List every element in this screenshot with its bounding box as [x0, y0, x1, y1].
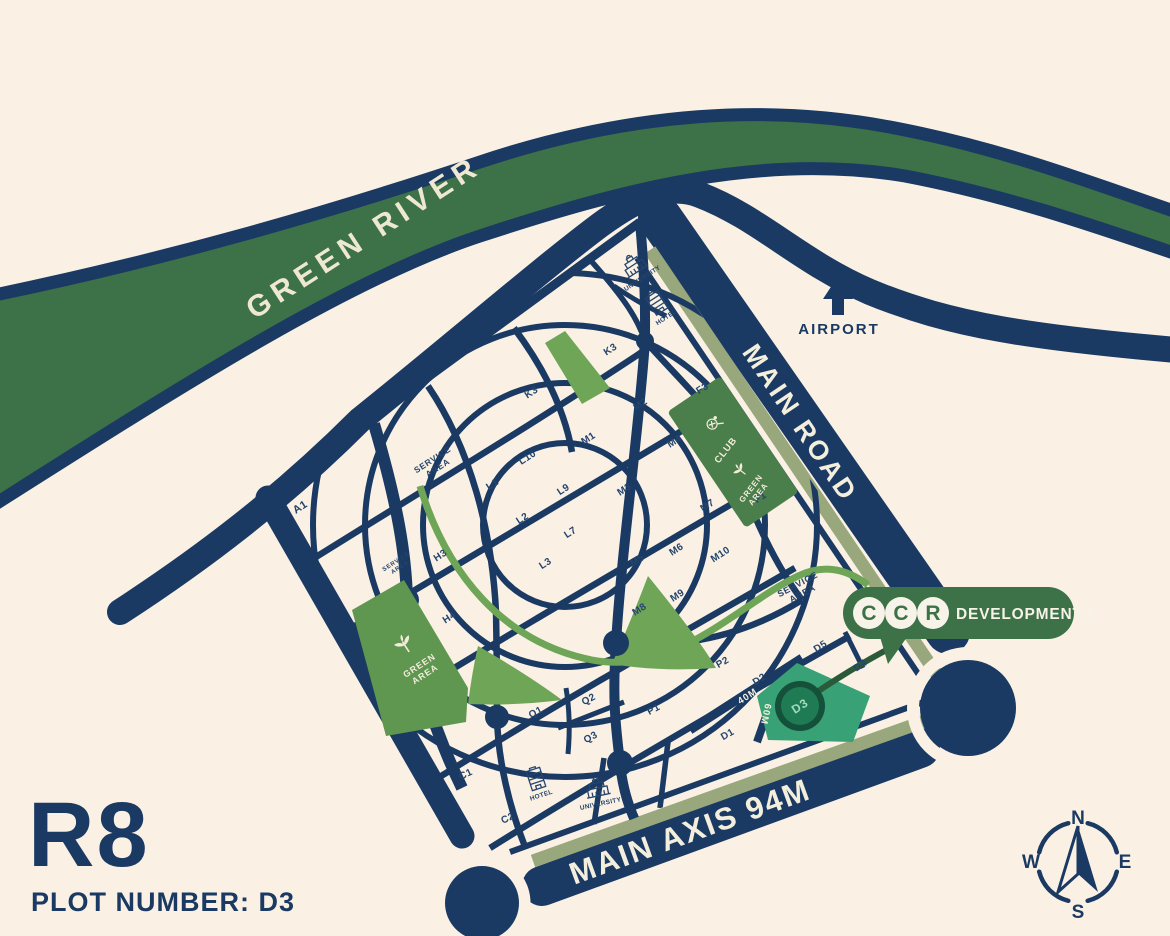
masterplan-svg: GREEN RIVER [0, 0, 1170, 936]
masterplan-canvas: GREEN RIVER [0, 0, 1170, 936]
plot-number-line: PLOT NUMBER: D3 [31, 887, 295, 917]
logo-letter-2: C [893, 602, 908, 625]
compass-west: W [1022, 852, 1040, 873]
roundabout-east [920, 660, 1016, 756]
airport-label: AIRPORT [798, 321, 880, 338]
compass-north: N [1071, 808, 1085, 829]
zone-code: R8 [28, 784, 150, 886]
logo-name: DEVELOPMENTS [956, 606, 1094, 623]
logo-letter-3: R [925, 602, 940, 625]
compass-south: S [1072, 902, 1085, 923]
logo-letter-1: C [861, 602, 876, 625]
compass-east: E [1119, 852, 1132, 873]
